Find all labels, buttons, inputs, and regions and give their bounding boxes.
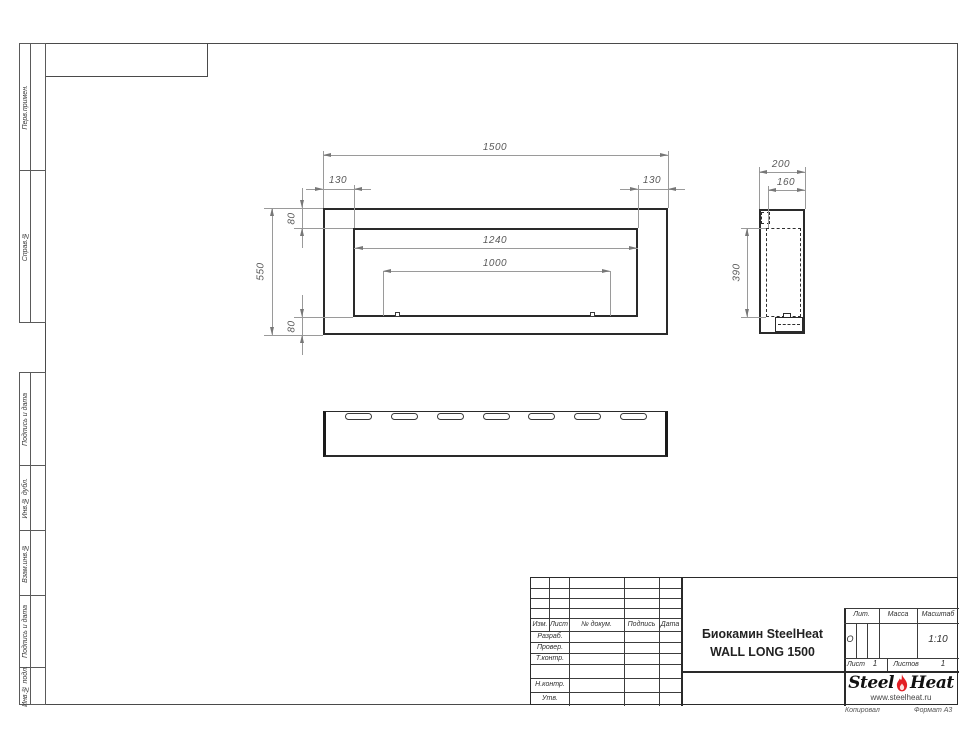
dim-arrow xyxy=(797,188,805,192)
dim-opening-width: 1240 xyxy=(465,235,525,246)
sheet-label: Лист xyxy=(846,661,866,669)
col-doc: № докум. xyxy=(569,621,624,629)
dim-arrow xyxy=(300,200,304,208)
dim-arrow xyxy=(355,246,363,250)
dim-line xyxy=(354,248,638,249)
dim-arrow xyxy=(315,187,323,191)
stamp-box-podpis-data-2: Подпись и дата xyxy=(19,595,46,668)
grid-line xyxy=(681,578,683,706)
dim-arrow xyxy=(300,309,304,317)
stamp-label: Инв.№ дубл. xyxy=(22,478,29,519)
logo-word-steel: Steel xyxy=(848,673,894,693)
dim-overall-width: 1500 xyxy=(465,142,525,153)
col-date: Дата xyxy=(659,621,681,629)
dim-arrow xyxy=(300,228,304,236)
side-view-hidden-cavity xyxy=(766,228,801,317)
dim-arrow xyxy=(745,228,749,236)
row-tcontrol: Т.контр. xyxy=(531,655,569,663)
dim-opening-height: 390 xyxy=(732,243,743,303)
grid-line xyxy=(887,658,888,671)
format-label: Формат А3 xyxy=(914,707,952,714)
stamp-box-sprav-no: Справ.№ xyxy=(19,170,46,323)
stamp-box-inv-podl: Инв.№ подл. xyxy=(19,667,46,705)
grid-line xyxy=(531,692,681,693)
logo-word-heat: Heat xyxy=(910,673,954,693)
grid-line xyxy=(531,664,681,665)
dim-line xyxy=(323,155,668,156)
stamp-label-cell: Подпись и дата xyxy=(20,373,31,465)
lit-label: Лит. xyxy=(844,611,879,619)
copied-label: Копировал xyxy=(845,707,880,714)
sheets-value: 1 xyxy=(933,659,953,668)
stamp-label-cell: Взам.инв.№ xyxy=(20,531,31,595)
dim-top-margin: 80 xyxy=(287,199,298,239)
sheet-value: 1 xyxy=(866,659,884,668)
ext-line xyxy=(638,185,639,228)
lit-value: О xyxy=(844,634,856,644)
stamp-label-cell: Перв.примен. xyxy=(20,44,31,170)
ext-line xyxy=(610,271,611,316)
ext-line xyxy=(354,185,355,228)
ext-line xyxy=(768,186,769,228)
stamp-label-cell: Инв.№ дубл. xyxy=(20,466,31,530)
dim-arrow xyxy=(602,269,610,273)
dim-right-margin: 130 xyxy=(632,175,672,186)
company-logo: Steel Heat www.steelheat.ru xyxy=(844,673,958,702)
ext-line xyxy=(805,167,806,209)
vent-slot-3 xyxy=(437,413,464,420)
dim-arrow xyxy=(797,170,805,174)
grid-line xyxy=(856,623,857,658)
col-list: Лист xyxy=(549,621,569,629)
row-approved: Утв. xyxy=(531,695,569,703)
vent-slot-4 xyxy=(483,413,510,420)
dim-arrow xyxy=(660,153,668,157)
dim-arrow xyxy=(745,309,749,317)
grid-line xyxy=(844,608,959,609)
sheets-label: Листов xyxy=(891,661,921,669)
stamp-label-cell: Инв.№ подл. xyxy=(20,668,31,704)
stamp-label: Справ.№ xyxy=(22,232,29,261)
stamp-label: Перв.примен. xyxy=(22,85,29,130)
grid-line xyxy=(531,642,681,643)
burner-mount-tab-left xyxy=(395,312,400,317)
vent-slot-7 xyxy=(620,413,647,420)
grid-line xyxy=(531,598,681,599)
col-sign: Подпись xyxy=(624,621,659,629)
dim-line xyxy=(272,208,273,335)
logo-website: www.steelheat.ru xyxy=(844,693,958,702)
row-ncontrol: Н.контр. xyxy=(531,681,569,689)
drawing-sheet: Перв.примен. Справ.№ Подпись и дата Инв.… xyxy=(0,0,970,749)
dim-arrow xyxy=(270,208,274,216)
dim-arrow xyxy=(383,269,391,273)
fuel-block-cap xyxy=(783,313,791,318)
fuel-block-hidden-line xyxy=(778,324,800,325)
grid-line xyxy=(531,678,681,679)
ext-line xyxy=(741,317,766,318)
dim-burner-length: 1000 xyxy=(465,258,525,269)
dim-inner-depth: 160 xyxy=(766,177,806,188)
vent-slot-6 xyxy=(574,413,601,420)
grid-line xyxy=(531,608,681,609)
stamp-box-inv-dubl: Инв.№ дубл. xyxy=(19,465,46,531)
burner-mount-tab-right xyxy=(590,312,595,317)
dim-line xyxy=(747,228,748,317)
dim-bottom-margin: 80 xyxy=(287,307,298,347)
vent-slot-1 xyxy=(345,413,372,420)
dim-arrow xyxy=(768,188,776,192)
document-title-line1: Биокамин SteelHeat xyxy=(702,626,823,641)
dim-depth: 200 xyxy=(761,159,801,170)
mass-label: Масса xyxy=(879,611,917,619)
ext-line xyxy=(383,271,384,316)
stamp-label: Взам.инв.№ xyxy=(22,544,29,583)
vent-slot-5 xyxy=(528,413,555,420)
vent-slot-2 xyxy=(391,413,418,420)
scale-label: Масштаб xyxy=(917,611,959,619)
stamp-label-cell: Справ.№ xyxy=(20,171,31,322)
dim-line xyxy=(302,188,303,248)
dim-arrow xyxy=(323,153,331,157)
grid-line xyxy=(531,588,681,589)
flame-icon xyxy=(895,674,909,692)
row-developed: Разраб. xyxy=(531,633,569,641)
dim-arrow xyxy=(354,187,362,191)
col-izm: Изм. xyxy=(531,621,549,629)
grid-line xyxy=(867,623,868,658)
grid-line xyxy=(844,623,959,624)
document-title: Биокамин SteelHeat WALL LONG 1500 xyxy=(685,614,840,670)
dim-overall-height: 550 xyxy=(256,242,267,302)
scale-value: 1:10 xyxy=(917,634,959,645)
dim-arrow xyxy=(629,246,637,250)
stamp-box-vzam-inv: Взам.инв.№ xyxy=(19,530,46,596)
dim-arrow xyxy=(668,187,676,191)
stamp-label: Подпись и дата xyxy=(22,605,29,658)
document-title-line2: WALL LONG 1500 xyxy=(710,644,815,659)
stamp-label-cell: Подпись и дата xyxy=(20,596,31,667)
dim-arrow xyxy=(630,187,638,191)
dim-arrow xyxy=(759,170,767,174)
grid-line xyxy=(531,618,681,619)
dim-arrow xyxy=(270,327,274,335)
dim-line xyxy=(302,295,303,355)
dim-arrow xyxy=(300,335,304,343)
stamp-label: Инв.№ подл. xyxy=(22,666,29,707)
stamp-box-perv-primen: Перв.примен. xyxy=(19,43,46,171)
dim-left-margin: 130 xyxy=(318,175,358,186)
title-block: Изм. Лист № докум. Подпись Дата Разраб. … xyxy=(530,577,958,705)
stamp-label: Подпись и дата xyxy=(22,393,29,446)
grid-line xyxy=(531,653,681,654)
dim-line xyxy=(383,271,610,272)
grid-line xyxy=(531,631,681,632)
stamp-box-podpis-data-1: Подпись и дата xyxy=(19,372,46,466)
corner-reference-box xyxy=(45,43,208,77)
row-checked: Провер. xyxy=(531,644,569,652)
